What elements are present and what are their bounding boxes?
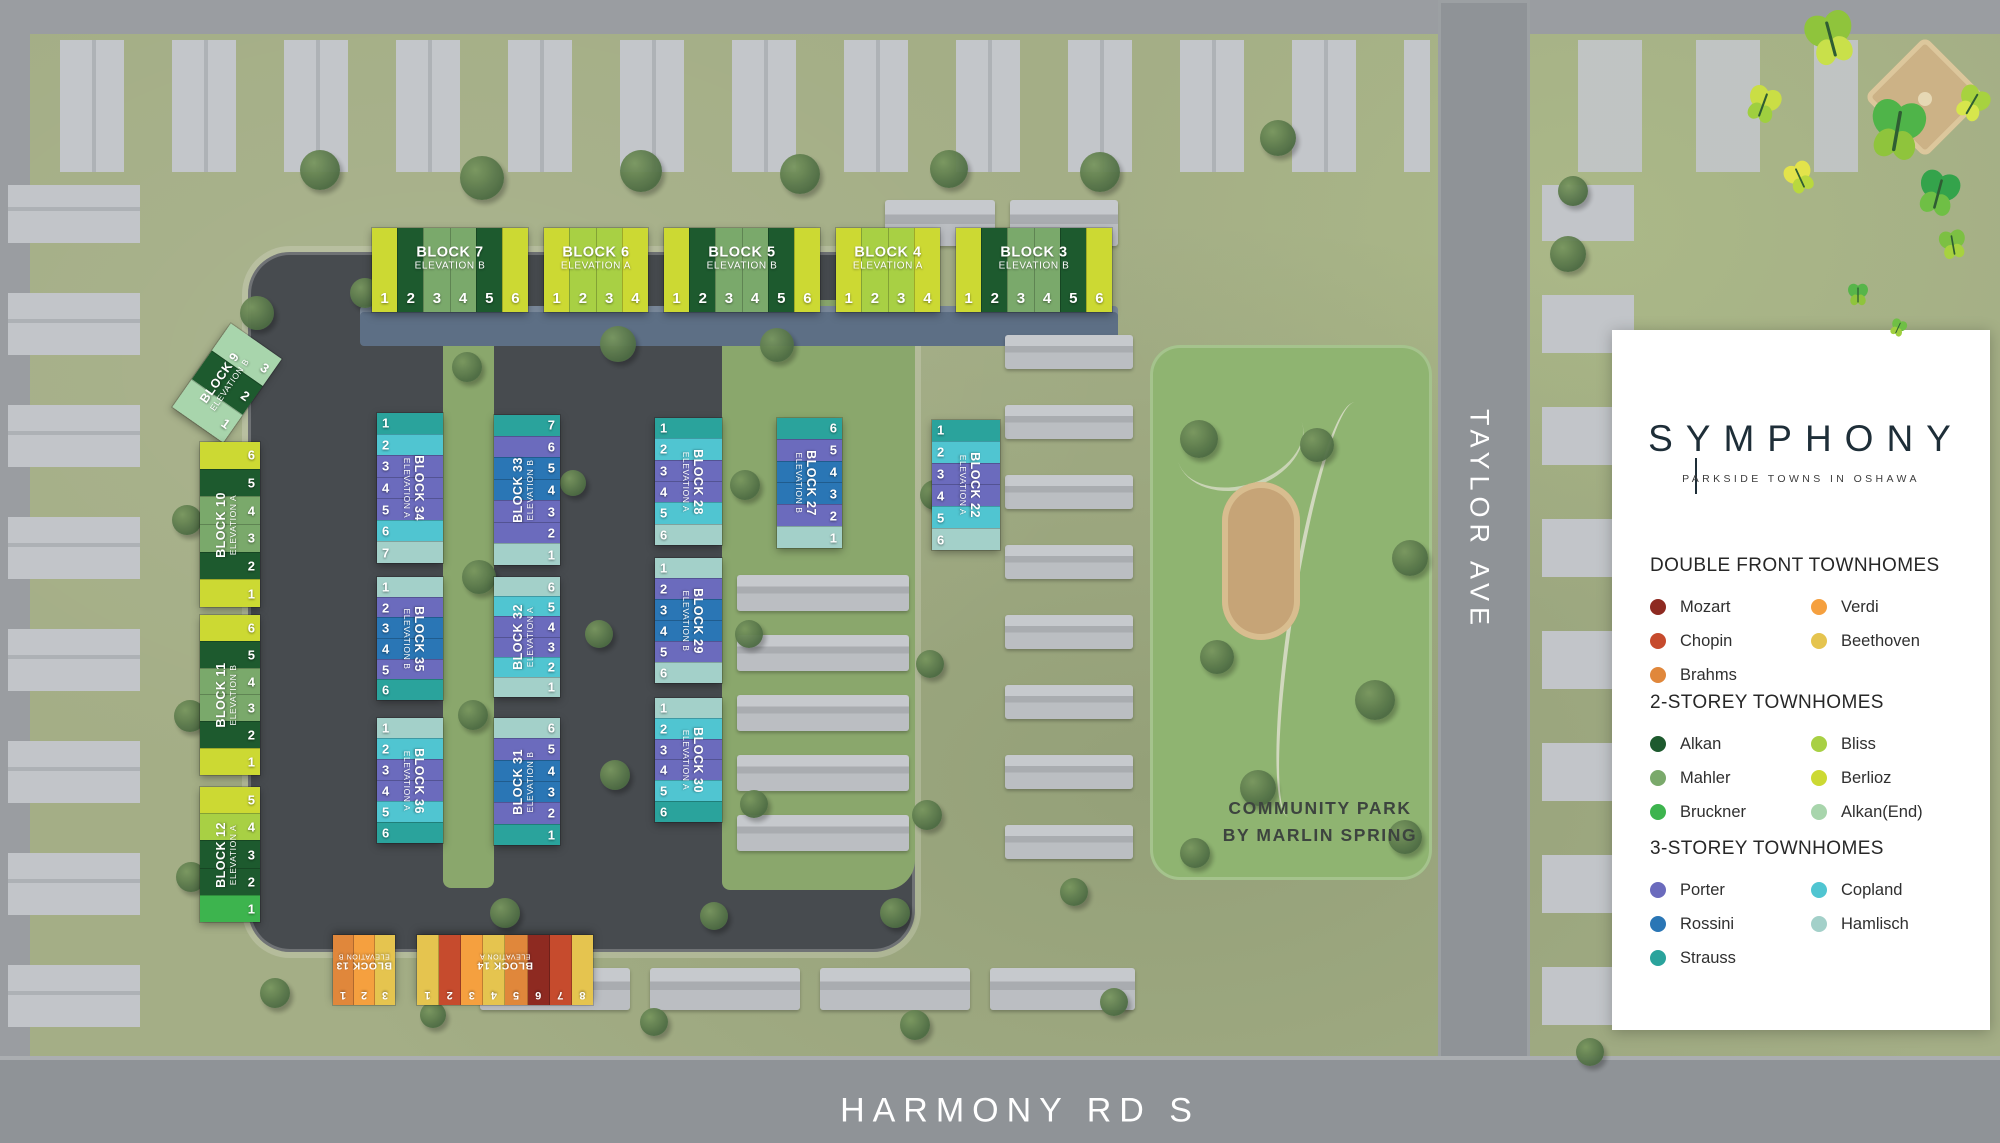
block-11-unit-2[interactable]: 2 — [200, 721, 260, 748]
tree — [458, 700, 488, 730]
tree — [916, 650, 944, 678]
color-swatch-icon — [1650, 736, 1666, 752]
tree — [600, 326, 636, 362]
block-29: 123456BLOCK 29ELEVATION B — [655, 558, 722, 683]
townhome-roof-row — [1005, 685, 1133, 719]
block-14-unit-6[interactable]: 6 — [528, 935, 550, 1005]
block-34-unit-3[interactable]: 3 — [377, 455, 443, 477]
tree — [930, 150, 968, 188]
block-35-unit-6[interactable]: 6 — [377, 679, 443, 700]
block-3-unit-6[interactable]: 6 — [1086, 228, 1112, 312]
block-33-unit-2[interactable]: 2 — [494, 522, 560, 544]
townhome-roof-row — [737, 635, 909, 671]
block-34: 1234567BLOCK 34ELEVATION A — [377, 413, 443, 563]
block-13-unit-2[interactable]: 2 — [354, 935, 375, 1005]
townhome-roof-row — [737, 695, 909, 731]
legend-item-alkan-end-: Alkan(End) — [1811, 795, 1972, 829]
legend-item-label: Mahler — [1680, 769, 1730, 788]
park-label: COMMUNITY PARK BY MARLIN SPRING — [1223, 795, 1417, 849]
legend-item-alkan: Alkan — [1650, 727, 1811, 761]
tree — [912, 800, 942, 830]
block-32-unit-3[interactable]: 3 — [494, 637, 560, 657]
color-swatch-icon — [1650, 950, 1666, 966]
courtyard-green-1 — [443, 300, 494, 888]
block-7-unit-5[interactable]: 5 — [476, 228, 502, 312]
legend-item-label: Brahms — [1680, 666, 1737, 685]
block-13-unit-1[interactable]: 1 — [333, 935, 354, 1005]
block-22-unit-5[interactable]: 5 — [932, 506, 1000, 528]
block-12-unit-2[interactable]: 2 — [200, 868, 260, 895]
legend-item-label: Berlioz — [1841, 769, 1891, 788]
block-27-unit-6[interactable]: 6 — [777, 418, 842, 439]
tree — [1260, 120, 1296, 156]
tree — [780, 154, 820, 194]
block-31: 654321BLOCK 31ELEVATION B — [494, 718, 560, 845]
tree — [300, 150, 340, 190]
park-label-line2: BY MARLIN SPRING — [1223, 822, 1417, 849]
block-34-unit-5[interactable]: 5 — [377, 498, 443, 520]
block-33-unit-6[interactable]: 6 — [494, 436, 560, 458]
block-6-unit-1[interactable]: 1 — [544, 228, 569, 312]
block-33-unit-3[interactable]: 3 — [494, 500, 560, 522]
tree — [1180, 838, 1210, 868]
block-32-unit-1[interactable]: 1 — [494, 677, 560, 697]
block-4-unit-1[interactable]: 1 — [836, 228, 861, 312]
block-7-unit-2[interactable]: 2 — [397, 228, 423, 312]
block-6: 1234BLOCK 6ELEVATION A — [544, 228, 648, 312]
block-33: 7654321BLOCK 33ELEVATION B — [494, 415, 560, 565]
tree — [600, 760, 630, 790]
tree — [620, 150, 662, 192]
block-10-unit-6[interactable]: 6 — [200, 442, 260, 469]
block-22-unit-3[interactable]: 3 — [932, 463, 1000, 485]
block-14-unit-7[interactable]: 7 — [550, 935, 572, 1005]
block-28-unit-5[interactable]: 5 — [655, 502, 722, 523]
legend-item-label: Bliss — [1841, 735, 1876, 754]
butterfly-icon — [1933, 225, 1972, 264]
block-12-unit-4[interactable]: 4 — [200, 813, 260, 840]
tree — [1392, 540, 1428, 576]
block-36-unit-2[interactable]: 2 — [377, 738, 443, 759]
block-27-unit-2[interactable]: 2 — [777, 504, 842, 526]
block-11-unit-1[interactable]: 1 — [200, 748, 260, 775]
block-4-unit-2[interactable]: 2 — [861, 228, 887, 312]
legend-item-label: Beethoven — [1841, 632, 1920, 651]
legend-item-brahms: Brahms — [1650, 658, 1811, 692]
block-30-unit-3[interactable]: 3 — [655, 739, 722, 760]
harmony-rd-label: HARMONY RD S — [840, 1092, 1200, 1131]
block-12-unit-5[interactable]: 5 — [200, 787, 260, 813]
block-4-unit-4[interactable]: 4 — [914, 228, 940, 312]
color-swatch-icon — [1811, 770, 1827, 786]
tree — [260, 978, 290, 1008]
block-33-unit-1[interactable]: 1 — [494, 543, 560, 565]
block-3-unit-3[interactable]: 3 — [1007, 228, 1033, 312]
block-35-unit-4[interactable]: 4 — [377, 638, 443, 659]
block-33-unit-7[interactable]: 7 — [494, 415, 560, 436]
block-10-unit-1[interactable]: 1 — [200, 579, 260, 607]
block-13: 321BLOCK 13ELEVATION B — [333, 935, 395, 1005]
block-5-unit-6[interactable]: 6 — [794, 228, 820, 312]
tree — [1060, 878, 1088, 906]
butterfly-icon — [1856, 90, 1937, 171]
block-30: 123456BLOCK 30ELEVATION A — [655, 698, 722, 822]
block-29-unit-4[interactable]: 4 — [655, 620, 722, 641]
existing-houses-north — [40, 40, 1430, 172]
block-28: 123456BLOCK 28ELEVATION A — [655, 418, 722, 545]
legend-item-hamlisch: Hamlisch — [1811, 907, 1972, 941]
block-14-unit-2[interactable]: 2 — [439, 935, 461, 1005]
color-swatch-icon — [1650, 804, 1666, 820]
block-36: 123456BLOCK 36ELEVATION A — [377, 718, 443, 843]
tree — [760, 328, 794, 362]
block-35-unit-1[interactable]: 1 — [377, 577, 443, 597]
tree — [730, 470, 760, 500]
block-27-unit-4[interactable]: 4 — [777, 461, 842, 483]
block-31-unit-3[interactable]: 3 — [494, 781, 560, 802]
block-5-unit-3[interactable]: 3 — [715, 228, 741, 312]
color-swatch-icon — [1811, 633, 1827, 649]
tree — [700, 902, 728, 930]
block-32-unit-4[interactable]: 4 — [494, 616, 560, 636]
block-14-unit-5[interactable]: 5 — [506, 935, 528, 1005]
tree — [1576, 1038, 1604, 1066]
block-14: 87654321BLOCK 14ELEVATION A — [417, 935, 593, 1005]
legend-item-label: Rossini — [1680, 915, 1734, 934]
block-28-unit-2[interactable]: 2 — [655, 438, 722, 459]
townhome-roof-row — [1005, 405, 1133, 439]
townhome-roof-row — [1005, 335, 1133, 369]
block-36-unit-1[interactable]: 1 — [377, 718, 443, 738]
color-swatch-icon — [1650, 916, 1666, 932]
tree — [240, 296, 274, 330]
block-22: 123456BLOCK 22ELEVATION A — [932, 420, 1000, 550]
logo-tagline: PARKSIDE TOWNS IN OSHAWA — [1612, 473, 1990, 485]
block-11-unit-5[interactable]: 5 — [200, 641, 260, 668]
block-36-unit-4[interactable]: 4 — [377, 780, 443, 801]
block-29-unit-6[interactable]: 6 — [655, 662, 722, 683]
block-4: 1234BLOCK 4ELEVATION A — [836, 228, 940, 312]
block-4-unit-3[interactable]: 3 — [888, 228, 914, 312]
block-10-unit-2[interactable]: 2 — [200, 552, 260, 580]
block-3-unit-2[interactable]: 2 — [981, 228, 1007, 312]
block-33-unit-5[interactable]: 5 — [494, 457, 560, 479]
townhome-roof-row — [1005, 615, 1133, 649]
color-swatch-icon — [1811, 882, 1827, 898]
block-29-unit-2[interactable]: 2 — [655, 578, 722, 599]
block-3-unit-5[interactable]: 5 — [1060, 228, 1086, 312]
block-27-unit-5[interactable]: 5 — [777, 439, 842, 461]
block-22-unit-4[interactable]: 4 — [932, 484, 1000, 506]
tree — [1100, 988, 1128, 1016]
block-3-unit-4[interactable]: 4 — [1034, 228, 1060, 312]
block-30-unit-2[interactable]: 2 — [655, 718, 722, 739]
block-31-unit-4[interactable]: 4 — [494, 760, 560, 781]
block-29-unit-1[interactable]: 1 — [655, 558, 722, 578]
block-27-unit-3[interactable]: 3 — [777, 482, 842, 504]
butterfly-icon — [1845, 282, 1871, 308]
logo-symphony: SYMPHONY — [1612, 418, 1990, 460]
legend-item-beethoven: Beethoven — [1811, 624, 1972, 658]
existing-houses-west — [8, 185, 140, 1045]
legend-item-mahler: Mahler — [1650, 761, 1811, 795]
tree — [1558, 176, 1588, 206]
tree — [420, 1002, 446, 1028]
block-10: 654321BLOCK 10ELEVATION A — [200, 442, 260, 607]
block-29-unit-3[interactable]: 3 — [655, 599, 722, 620]
legend-section-title: 3-STOREY TOWNHOMES — [1650, 838, 1972, 860]
block-36-unit-5[interactable]: 5 — [377, 801, 443, 822]
legend-item-bruckner: Bruckner — [1650, 795, 1811, 829]
block-27-unit-1[interactable]: 1 — [777, 526, 842, 548]
legend-item-label: Bruckner — [1680, 803, 1746, 822]
block-7-unit-6[interactable]: 6 — [502, 228, 528, 312]
block-5-unit-4[interactable]: 4 — [742, 228, 768, 312]
legend-item-bliss: Bliss — [1811, 727, 1972, 761]
townhome-roof-row — [1005, 825, 1133, 859]
tree — [452, 352, 482, 382]
block-13-unit-3[interactable]: 3 — [375, 935, 395, 1005]
legend-item-label: Strauss — [1680, 949, 1736, 968]
tree — [900, 1010, 930, 1040]
legend-item-berlioz: Berlioz — [1811, 761, 1972, 795]
block-3: 123456BLOCK 3ELEVATION B — [956, 228, 1112, 312]
block-35-unit-3[interactable]: 3 — [377, 617, 443, 638]
legend-item-strauss: Strauss — [1650, 941, 1811, 975]
tree — [490, 898, 520, 928]
townhome-roof-row — [737, 575, 909, 611]
block-34-unit-4[interactable]: 4 — [377, 477, 443, 499]
block-29-unit-5[interactable]: 5 — [655, 641, 722, 662]
block-14-unit-1[interactable]: 1 — [417, 935, 439, 1005]
block-6-unit-4[interactable]: 4 — [622, 228, 648, 312]
block-5-unit-2[interactable]: 2 — [689, 228, 715, 312]
block-7-unit-3[interactable]: 3 — [423, 228, 449, 312]
block-7: 123456BLOCK 7ELEVATION B — [372, 228, 528, 312]
block-10-unit-3[interactable]: 3 — [200, 524, 260, 552]
legend-item-label: Alkan(End) — [1841, 803, 1923, 822]
block-30-unit-4[interactable]: 4 — [655, 759, 722, 780]
tree — [880, 898, 910, 928]
legend-item-copland: Copland — [1811, 873, 1972, 907]
tree — [1200, 640, 1234, 674]
block-22-unit-6[interactable]: 6 — [932, 528, 1000, 550]
legend-item-label: Hamlisch — [1841, 915, 1909, 934]
color-swatch-icon — [1811, 916, 1827, 932]
block-28-unit-4[interactable]: 4 — [655, 481, 722, 502]
tree — [560, 470, 586, 496]
block-6-unit-2[interactable]: 2 — [569, 228, 595, 312]
legend-item-label: Copland — [1841, 881, 1902, 900]
block-12-unit-1[interactable]: 1 — [200, 895, 260, 922]
legend-item-chopin: Chopin — [1650, 624, 1811, 658]
block-3-unit-1[interactable]: 1 — [956, 228, 981, 312]
tree — [1550, 236, 1586, 272]
block-32-unit-6[interactable]: 6 — [494, 577, 560, 596]
legend-section-title: DOUBLE FRONT TOWNHOMES — [1650, 555, 1972, 577]
block-22-unit-2[interactable]: 2 — [932, 441, 1000, 463]
color-swatch-icon — [1650, 770, 1666, 786]
color-swatch-icon — [1811, 599, 1827, 615]
townhome-roof-row — [737, 815, 909, 851]
block-35: 123456BLOCK 35ELEVATION B — [377, 577, 443, 700]
block-34-unit-2[interactable]: 2 — [377, 434, 443, 456]
block-31-unit-2[interactable]: 2 — [494, 802, 560, 823]
block-30-unit-6[interactable]: 6 — [655, 801, 722, 822]
color-swatch-icon — [1811, 804, 1827, 820]
tree — [460, 156, 504, 200]
block-31-unit-6[interactable]: 6 — [494, 718, 560, 738]
block-11-unit-3[interactable]: 3 — [200, 694, 260, 721]
color-swatch-icon — [1650, 599, 1666, 615]
park-label-line1: COMMUNITY PARK — [1223, 795, 1417, 822]
block-28-unit-6[interactable]: 6 — [655, 524, 722, 545]
color-swatch-icon — [1650, 633, 1666, 649]
block-12: 54321BLOCK 12ELEVATION A — [200, 787, 260, 922]
block-31-unit-1[interactable]: 1 — [494, 824, 560, 845]
block-28-unit-3[interactable]: 3 — [655, 460, 722, 481]
color-swatch-icon — [1650, 667, 1666, 683]
block-7-unit-4[interactable]: 4 — [450, 228, 476, 312]
block-11: 654321BLOCK 11ELEVATION B — [200, 615, 260, 775]
tree — [1080, 152, 1120, 192]
legend-item-porter: Porter — [1650, 873, 1811, 907]
townhome-roof-row — [1005, 545, 1133, 579]
block-14-unit-4[interactable]: 4 — [483, 935, 505, 1005]
legend-item-label: Alkan — [1680, 735, 1721, 754]
block-22-unit-1[interactable]: 1 — [932, 420, 1000, 441]
townhome-roof-row — [1005, 755, 1133, 789]
tree — [172, 505, 202, 535]
legend-item-verdi: Verdi — [1811, 590, 1972, 624]
playground — [1222, 482, 1300, 640]
tree — [735, 620, 763, 648]
tree — [740, 790, 768, 818]
tree — [1300, 428, 1334, 462]
block-32-unit-2[interactable]: 2 — [494, 657, 560, 677]
tree — [585, 620, 613, 648]
block-35-unit-2[interactable]: 2 — [377, 597, 443, 618]
color-swatch-icon — [1811, 736, 1827, 752]
block-10-unit-5[interactable]: 5 — [200, 469, 260, 497]
block-27: 654321BLOCK 27ELEVATION B — [777, 418, 842, 548]
legend-item-label: Porter — [1680, 881, 1725, 900]
block-34-unit-6[interactable]: 6 — [377, 520, 443, 542]
block-12-unit-3[interactable]: 3 — [200, 840, 260, 867]
tree — [1355, 680, 1395, 720]
block-6-unit-3[interactable]: 3 — [596, 228, 622, 312]
legend-item-mozart: Mozart — [1650, 590, 1811, 624]
legend-item-label: Chopin — [1680, 632, 1732, 651]
color-swatch-icon — [1650, 882, 1666, 898]
block-5-unit-5[interactable]: 5 — [768, 228, 794, 312]
block-14-unit-3[interactable]: 3 — [461, 935, 483, 1005]
north-road — [0, 0, 2000, 34]
tree — [1180, 420, 1218, 458]
legend-item-label: Mozart — [1680, 598, 1730, 617]
block-36-unit-6[interactable]: 6 — [377, 822, 443, 843]
block-34-unit-7[interactable]: 7 — [377, 541, 443, 563]
taylor-ave-label: TAYLOR AVE — [1464, 409, 1495, 631]
legend-section-title: 2-STOREY TOWNHOMES — [1650, 692, 1972, 714]
tree — [640, 1008, 668, 1036]
block-28-unit-1[interactable]: 1 — [655, 418, 722, 438]
block-36-unit-3[interactable]: 3 — [377, 759, 443, 780]
block-32: 654321BLOCK 32ELEVATION A — [494, 577, 560, 697]
block-34-unit-1[interactable]: 1 — [377, 413, 443, 434]
legend-section-3: 3-STOREY TOWNHOMESPorterRossiniStraussCo… — [1650, 838, 1972, 975]
townhome-roof-row — [650, 968, 800, 1010]
block-32-unit-5[interactable]: 5 — [494, 596, 560, 616]
townhome-roof-row — [820, 968, 970, 1010]
block-33-unit-4[interactable]: 4 — [494, 479, 560, 501]
legend-section-1: DOUBLE FRONT TOWNHOMESMozartChopinBrahms… — [1650, 555, 1972, 692]
townhome-roof-row — [1005, 475, 1133, 509]
block-5-unit-1[interactable]: 1 — [664, 228, 689, 312]
block-5: 123456BLOCK 5ELEVATION B — [664, 228, 820, 312]
block-35-unit-5[interactable]: 5 — [377, 659, 443, 680]
block-10-unit-4[interactable]: 4 — [200, 496, 260, 524]
legend-item-label: Verdi — [1841, 598, 1879, 617]
townhome-roof-row — [737, 755, 909, 791]
legend-section-2: 2-STOREY TOWNHOMESAlkanMahlerBrucknerBli… — [1650, 692, 1972, 829]
block-31-unit-5[interactable]: 5 — [494, 738, 560, 759]
block-14-unit-8[interactable]: 8 — [572, 935, 593, 1005]
tree — [462, 560, 496, 594]
legend-item-rossini: Rossini — [1650, 907, 1811, 941]
site-plan-canvas: 123456BLOCK 7ELEVATION B1234BLOCK 6ELEVA… — [0, 0, 2000, 1143]
legend-panel: SYMPHONY PARKSIDE TOWNS IN OSHAWA DOUBLE… — [1612, 330, 1990, 1030]
block-11-unit-6[interactable]: 6 — [200, 615, 260, 641]
block-7-unit-1[interactable]: 1 — [372, 228, 397, 312]
block-30-unit-5[interactable]: 5 — [655, 780, 722, 801]
block-30-unit-1[interactable]: 1 — [655, 698, 722, 718]
block-11-unit-4[interactable]: 4 — [200, 668, 260, 695]
